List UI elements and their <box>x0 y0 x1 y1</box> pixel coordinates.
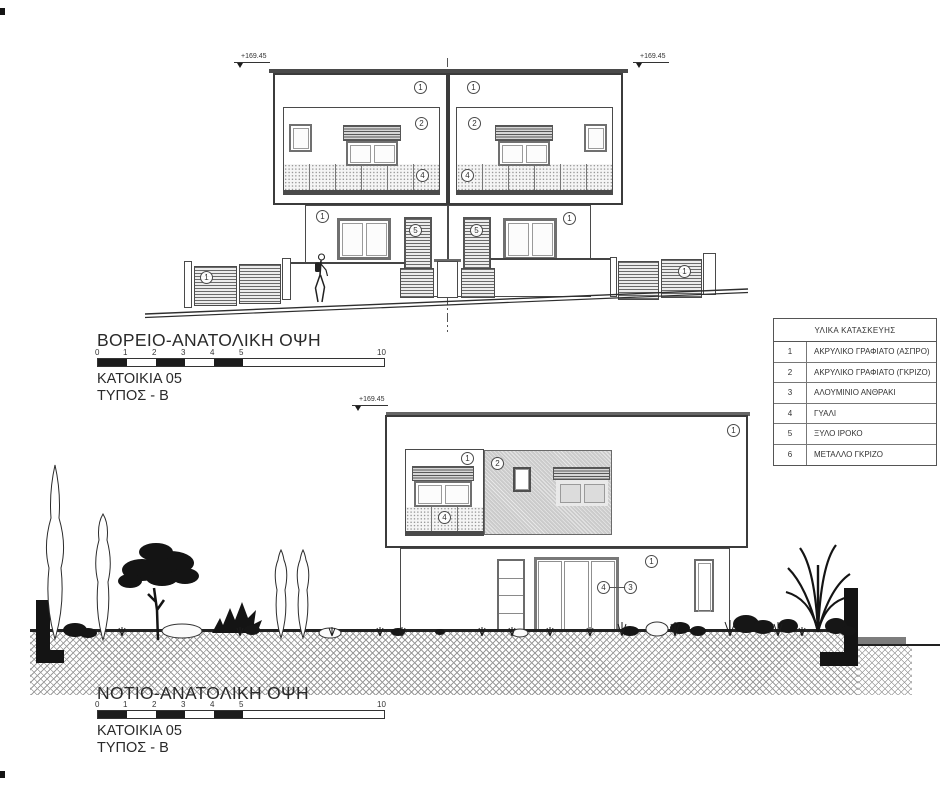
roller-shutter-right <box>495 125 553 141</box>
scale-tick: 5 <box>239 348 243 357</box>
material-label: ΓΥΑΛΙ <box>807 404 936 424</box>
ground-slope-lines <box>140 283 752 323</box>
material-row: 1 ΑΚΡΥΛΙΚΟ ΓΡΑΦΙΑΤΟ (ΑΣΠΡΟ) <box>774 342 936 363</box>
balcony-slab-right <box>457 190 612 194</box>
small-window-left <box>289 124 312 152</box>
material-label: ΜΕΤΑΛΛΟ ΓΚΡΙΖΟ <box>807 445 936 466</box>
se-title: ΝΟΤΙΟ-ΑΝΑΤΟΛΙΚΗ ΟΨΗ <box>97 683 309 704</box>
edge-mark-top <box>0 8 5 15</box>
callout-material-1: 1 <box>727 424 740 437</box>
scale-tick: 0 <box>95 700 99 709</box>
edge-mark-bottom <box>0 771 5 778</box>
vegetation <box>30 450 910 650</box>
scale-bar <box>97 710 385 719</box>
callout-material-1: 1 <box>678 265 691 278</box>
se-dwelling-label: ΚΑΤΟΙΚΙΑ 05 <box>97 723 182 739</box>
gf-window-left <box>337 218 391 260</box>
callout-material-1: 1 <box>645 555 658 568</box>
scale-tick: 10 <box>377 348 386 357</box>
callout-material-4: 4 <box>597 581 610 594</box>
soil-hatch-right <box>858 646 912 695</box>
callout-material-1: 1 <box>461 452 474 465</box>
scale-tick: 1 <box>123 700 127 709</box>
callout-material-1: 1 <box>414 81 427 94</box>
person-figure <box>306 252 336 306</box>
callout-material-4: 4 <box>461 169 474 182</box>
cypress-tree <box>46 465 63 639</box>
callout-material-5: 5 <box>409 224 422 237</box>
balcony-rail-right <box>457 164 612 190</box>
material-number: 2 <box>774 363 807 383</box>
scale-tick: 5 <box>239 700 243 709</box>
scale-tick: 1 <box>123 348 127 357</box>
callout-material-4: 4 <box>438 511 451 524</box>
gf-window-right <box>503 218 557 260</box>
scale-bar <box>97 358 385 367</box>
materials-table-title: ΥΛΙΚΑ ΚΑΤΑΣΚΕΥΗΣ <box>774 319 936 342</box>
scale-tick: 3 <box>181 700 185 709</box>
callout-material-2: 2 <box>491 457 504 470</box>
callout-material-1: 1 <box>467 81 480 94</box>
level-marker-se: +169.45 <box>352 396 388 411</box>
ne-dwelling-label: ΚΑΤΟΙΚΙΑ 05 <box>97 371 182 387</box>
material-row: 4 ΓΥΑΛΙ <box>774 404 936 425</box>
material-label: ΑΛΟΥΜΙΝΙΟ ΑΝΘΡΑΚΙ <box>807 383 936 403</box>
material-label: ΞΥΛΟ ΙΡΟΚΟ <box>807 424 936 444</box>
material-label: ΑΚΡΥΛΙΚΟ ΓΡΑΦΙΑΤΟ (ΑΣΠΡΟ) <box>807 342 936 362</box>
material-number: 4 <box>774 404 807 424</box>
material-number: 3 <box>774 383 807 403</box>
ne-title: ΒΟΡΕΙΟ-ΑΝΑΤΟΛΙΚΗ ΟΨΗ <box>97 330 321 351</box>
retaining-wall-left-foot <box>36 650 64 663</box>
scale-tick: 2 <box>152 348 156 357</box>
level-triangle-icon <box>355 406 361 411</box>
callout-material-1: 1 <box>316 210 329 223</box>
cypress-tree <box>275 550 287 638</box>
scale-tick: 4 <box>210 348 214 357</box>
scale-tick: 10 <box>377 700 386 709</box>
material-row: 6 ΜΕΤΑΛΛΟ ΓΚΡΙΖΟ <box>774 445 936 466</box>
material-row: 3 ΑΛΟΥΜΙΝΙΟ ΑΝΘΡΑΚΙ <box>774 383 936 404</box>
material-row: 5 ΞΥΛΟ ΙΡΟΚΟ <box>774 424 936 445</box>
cypress-tree <box>96 514 111 640</box>
callout-material-3: 3 <box>624 581 637 594</box>
level-text: +169.45 <box>352 396 388 406</box>
material-row: 2 ΑΚΡΥΛΙΚΟ ΓΡΑΦΙΑΤΟ (ΓΚΡΙΖΟ) <box>774 363 936 384</box>
callout-material-4: 4 <box>416 169 429 182</box>
material-number: 1 <box>774 342 807 362</box>
scale-tick: 3 <box>181 348 185 357</box>
level-text: +169.45 <box>633 53 669 63</box>
drawing-canvas: { "drawing": { "ne_elevation": { "title"… <box>0 0 943 793</box>
callout-material-2: 2 <box>468 117 481 130</box>
material-label: ΑΚΡΥΛΙΚΟ ΓΡΑΦΙΑΤΟ (ΓΚΡΙΖΟ) <box>807 363 936 383</box>
scale-tick: 4 <box>210 700 214 709</box>
balcony-window-left <box>346 141 398 166</box>
callout-material-1: 1 <box>200 271 213 284</box>
balcony-window-right <box>498 141 550 166</box>
roller-shutter-left <box>343 125 401 141</box>
materials-table: ΥΛΙΚΑ ΚΑΤΑΣΚΕΥΗΣ 1 ΑΚΡΥΛΙΚΟ ΓΡΑΦΙΑΤΟ (ΑΣ… <box>773 318 937 466</box>
scale-tick: 0 <box>95 348 99 357</box>
level-triangle-icon <box>237 63 243 68</box>
cypress-tree <box>297 550 309 638</box>
level-marker-ne-right: +169.45 <box>633 53 669 68</box>
callout-material-5: 5 <box>470 224 483 237</box>
small-window-right <box>584 124 607 152</box>
ne-type-label: ΤΥΠΟΣ - Β <box>97 388 169 404</box>
level-marker-ne-left: +169.45 <box>234 53 270 68</box>
se-type-label: ΤΥΠΟΣ - Β <box>97 740 169 756</box>
level-triangle-icon <box>636 63 642 68</box>
callout-material-1: 1 <box>563 212 576 225</box>
balcony-slab-left <box>284 190 439 194</box>
scale-tick: 2 <box>152 700 156 709</box>
material-number: 6 <box>774 445 807 466</box>
level-text: +169.45 <box>234 53 270 63</box>
material-number: 5 <box>774 424 807 444</box>
retaining-wall-right-foot <box>820 652 858 666</box>
callout-material-2: 2 <box>415 117 428 130</box>
